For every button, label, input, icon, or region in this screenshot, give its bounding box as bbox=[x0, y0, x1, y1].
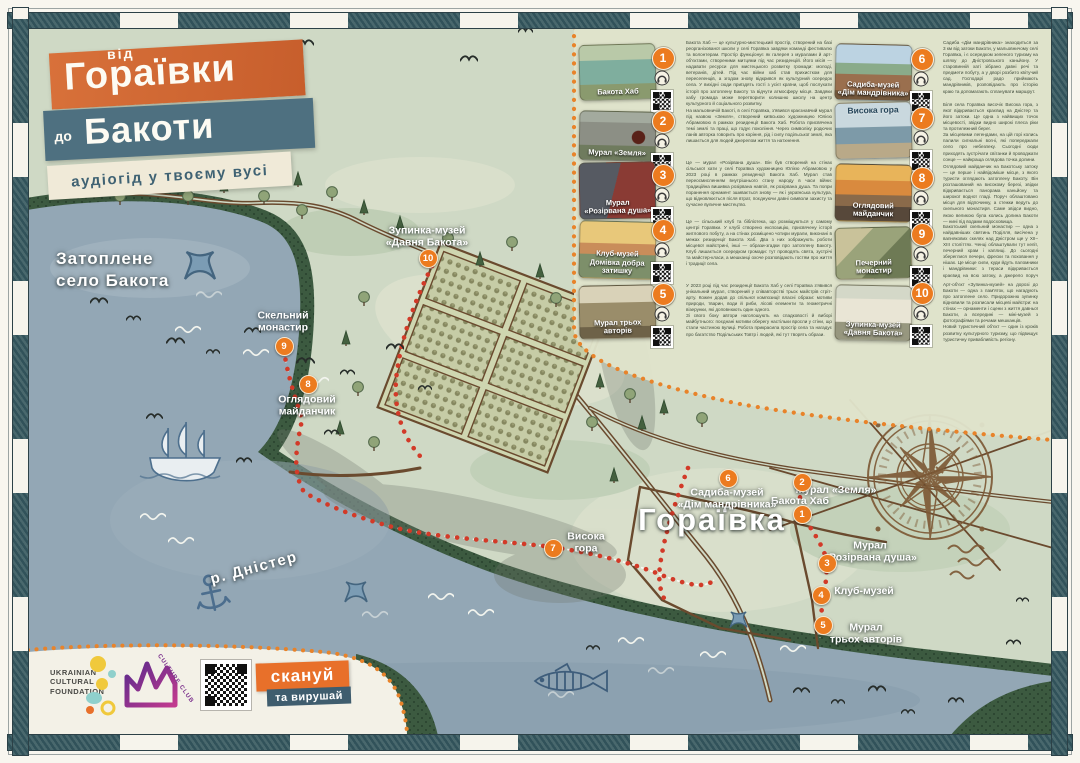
map-marker-label-7: Висока гора bbox=[567, 531, 604, 554]
legend-caption-1: Бакота Хаб bbox=[581, 87, 654, 98]
legend-text-3: Це — мурал «Розірвана душа». Він був ств… bbox=[686, 160, 832, 218]
legend-photo-7: Висока гора bbox=[834, 101, 912, 160]
legend-number-10: 10 bbox=[911, 282, 934, 305]
legend-number-5: 5 bbox=[652, 283, 675, 306]
qr-code-4 bbox=[651, 262, 673, 284]
map-marker-8: 8 bbox=[299, 375, 318, 394]
headphones-icon bbox=[654, 133, 670, 149]
legend-text-4: Це — сільський клуб та бібліотека, що ро… bbox=[686, 219, 832, 279]
subtitle: аудіогід у твоєму вусі bbox=[71, 161, 269, 190]
legend-number-7: 7 bbox=[911, 107, 934, 130]
legend-text-5: У 2023 році під час резиденції Бакота Ха… bbox=[686, 283, 832, 357]
legend-photo-8: Оглядовий майданчик bbox=[834, 163, 912, 222]
legend-photo-3: Мурал «Розірвана душа» bbox=[579, 161, 657, 219]
headphones-icon bbox=[654, 187, 670, 203]
headphones-icon bbox=[913, 246, 929, 262]
map-marker-6: 6 bbox=[719, 469, 738, 488]
map-marker-label-6: Садиба-музей «Дім мандрівника» bbox=[678, 487, 777, 510]
legend-number-6: 6 bbox=[911, 48, 934, 71]
map-marker-1: 1 bbox=[793, 505, 812, 524]
legend-photo-6: Садиба-музей «Дім мандрівника» bbox=[834, 43, 912, 102]
frame-bottom bbox=[7, 734, 1073, 751]
map-marker-label-5: Мурал трьох авторів bbox=[830, 622, 902, 645]
ucf-logo-blobs bbox=[80, 652, 124, 718]
legend-number-4: 4 bbox=[652, 219, 675, 242]
map-marker-4: 4 bbox=[812, 586, 831, 605]
legend-number-1: 1 bbox=[652, 47, 675, 70]
map-marker-3: 3 bbox=[818, 554, 837, 573]
qr-code-10 bbox=[910, 325, 932, 347]
headphones-icon bbox=[654, 306, 670, 322]
legend-photo-9: Печерний монастир bbox=[834, 226, 912, 280]
go-badge-text: та вирушай bbox=[275, 689, 343, 703]
legend-text-1: Бакота Хаб — це культурно-мистецький про… bbox=[686, 40, 832, 112]
legend-text-10: Арт-об'єкт «Зупинка-музей» на дорозі до … bbox=[943, 282, 1038, 346]
legend-number-9: 9 bbox=[911, 223, 934, 246]
frame-left bbox=[12, 7, 29, 756]
water-label: Затоплене село Бакота bbox=[56, 248, 169, 292]
scan-badge-text: скануй bbox=[270, 665, 334, 687]
headphones-icon bbox=[913, 71, 929, 87]
map-marker-label-4: Клуб-музей bbox=[834, 586, 893, 598]
legend-text-6: Садиба «Дім мандрівника» знаходиться за … bbox=[943, 40, 1038, 102]
legend-photo-10: Зупинка-музей «Давня Бакота» bbox=[834, 284, 912, 342]
title-word-2: Бакоти bbox=[83, 105, 215, 153]
legend-caption-7: Висока гора bbox=[836, 105, 909, 116]
legend-photo-1: Бакота Хаб bbox=[578, 43, 656, 101]
legend-number-8: 8 bbox=[911, 167, 934, 190]
legend-text-7: Біля села Гораївка височіє Висока гора, … bbox=[943, 102, 1038, 164]
legend-text-2: На мальовничій Бакоті, в селі Гораївка, … bbox=[686, 108, 832, 160]
legend-number-3: 3 bbox=[652, 164, 675, 187]
map-marker-5: 5 bbox=[814, 616, 833, 635]
qr-code-1 bbox=[651, 90, 673, 112]
frame-top bbox=[7, 12, 1073, 29]
legend-number-2: 2 bbox=[652, 110, 675, 133]
title-block: від Гораївки до Бакоти аудіогід у твоєму… bbox=[37, 35, 343, 215]
map-marker-label-8: Оглядовий майданчик bbox=[278, 394, 336, 417]
qr-code-main bbox=[201, 660, 251, 710]
legend-caption-6: Садиба-музей «Дім мандрівника» bbox=[836, 80, 909, 99]
headphones-icon bbox=[913, 130, 929, 146]
map-marker-7: 7 bbox=[544, 539, 563, 558]
frame-right bbox=[1051, 7, 1068, 756]
legend-photo-4: Клуб-музей Домівка добра затишку bbox=[578, 220, 656, 280]
headphones-icon bbox=[913, 190, 929, 206]
legend-caption-3: Мурал «Розірвана душа» bbox=[581, 198, 654, 217]
title-prefix-2: до bbox=[54, 128, 72, 145]
qr-code-5 bbox=[651, 326, 673, 348]
go-badge: та вирушай bbox=[267, 687, 352, 707]
legend-caption-8: Оглядовий майданчик bbox=[837, 201, 910, 220]
map-marker-9: 9 bbox=[275, 337, 294, 356]
headphones-icon bbox=[654, 70, 670, 86]
headphones-icon bbox=[913, 305, 929, 321]
map-marker-label-10: Зупинка-музей «Давня Бакота» bbox=[386, 225, 468, 248]
map-marker-2: 2 bbox=[793, 473, 812, 492]
poster: від Гораївки до Бакоти аудіогід у твоєму… bbox=[0, 0, 1080, 763]
legend-photo-2: Мурал «Земля» bbox=[578, 110, 656, 162]
legend-text-9: Бакотський скельний монастир — одна з на… bbox=[943, 224, 1038, 280]
legend-photo-5: Мурал трьох авторів bbox=[578, 284, 656, 340]
title-word-1: Гораївки bbox=[63, 47, 237, 100]
map-marker-label-3: Мурал «Розірвана душа» bbox=[823, 540, 917, 563]
map-marker-label-9: Скельний монастир bbox=[257, 310, 308, 333]
legend-caption-9: Печерний монастир bbox=[837, 258, 910, 277]
legend-caption-2: Мурал «Земля» bbox=[581, 149, 654, 159]
map-marker-10: 10 bbox=[419, 249, 438, 268]
legend-caption-4: Клуб-музей Домівка добра затишку bbox=[580, 249, 654, 277]
headphones-icon bbox=[654, 242, 670, 258]
legend-caption-10: Зупинка-музей «Давня Бакота» bbox=[836, 320, 909, 339]
legend-caption-5: Мурал трьох авторів bbox=[581, 318, 654, 337]
legend-text-8: Оглядовий майданчик на Бакотську затоку … bbox=[943, 164, 1038, 224]
title-line-1: від Гораївки bbox=[49, 39, 306, 109]
culture-club-logo bbox=[120, 656, 182, 712]
